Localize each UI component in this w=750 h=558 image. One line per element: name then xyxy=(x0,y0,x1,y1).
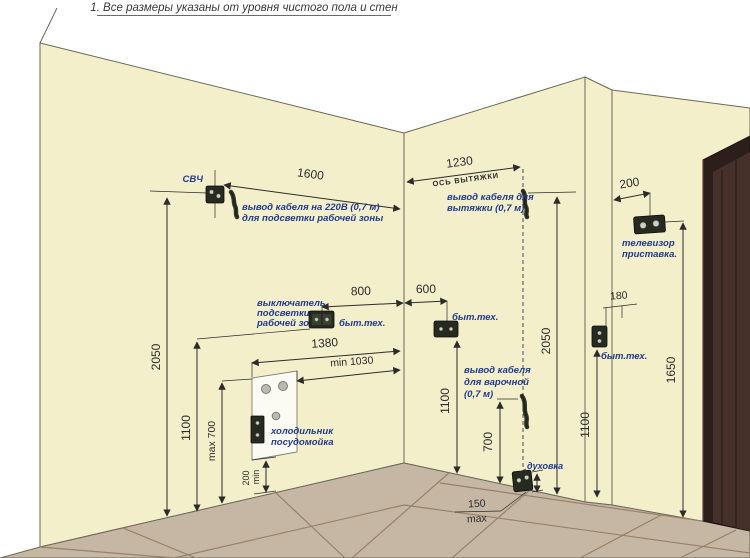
dim-150-label: 150 xyxy=(468,498,486,511)
byt-teh-middle-label: быт.тех. xyxy=(452,312,498,323)
socket-icon-panel xyxy=(251,416,264,443)
socket-icon-byt-teh-right xyxy=(592,326,607,347)
dim-700-label: 700 xyxy=(481,432,495,452)
tv-note-line2: приставка. xyxy=(622,249,677,260)
byt-teh-left-label: быт.тех. xyxy=(339,318,385,329)
fridge-note-line2: посудомойка xyxy=(271,437,334,448)
drawing-note-title: 1. Все размеры указаны от уровня чистого… xyxy=(90,2,398,14)
socket-icon-oven xyxy=(512,470,533,492)
corner-post xyxy=(585,77,612,505)
socket-icon-tv xyxy=(633,215,665,234)
dim-1100-right-label: 1100 xyxy=(578,412,592,438)
dim-150-suffix-label: max xyxy=(467,512,488,525)
dim-200-suffix-label: min xyxy=(251,470,261,485)
dim-180-label: 180 xyxy=(610,289,628,302)
svch-label: СВЧ xyxy=(183,174,204,185)
dim-2050-left-label: 2050 xyxy=(149,343,163,370)
byt-teh-right-label: быт.тех. xyxy=(601,351,647,362)
panel-knob xyxy=(262,385,271,394)
dim-1380-label: 1380 xyxy=(311,335,339,351)
dim-max-700-label: max 700 xyxy=(206,421,218,461)
kitchen-wiring-diagram: 1. Все размеры указаны от уровня чистого… xyxy=(0,0,750,558)
dim-200-label: 200 xyxy=(241,470,251,485)
dim-1100-middle-label: 1100 xyxy=(438,388,452,414)
dim-600-label: 600 xyxy=(416,282,437,296)
cable-220v-note-line1: вывод кабеля на 220В (0,7 м) xyxy=(242,202,380,213)
hood-note-line1: вывод кабеля для xyxy=(447,192,534,203)
hob-note-line3: (0,7 м) xyxy=(464,389,493,400)
tv-note-line1: телевизор xyxy=(622,238,675,249)
panel-knob xyxy=(272,412,280,420)
door-panel xyxy=(713,152,750,531)
fridge-note-line1: холодильник xyxy=(270,426,334,437)
hob-note-line1: вывод кабеля xyxy=(464,365,531,376)
socket-icon-byt-teh-middle xyxy=(434,321,458,337)
panel-knob xyxy=(279,382,288,391)
oven-label: духовка xyxy=(527,461,563,471)
cable-220v-note-line2: для подсветки рабочей зоны xyxy=(242,213,383,224)
diagram-svg: 1. Все размеры указаны от уровня чистого… xyxy=(0,0,750,558)
hob-note-line2: для варочной xyxy=(464,377,529,388)
hood-note-line2: вытяжки (0,7 м) xyxy=(447,203,524,214)
socket-icon-switch xyxy=(309,311,334,328)
dim-1100-left-label: 1100 xyxy=(179,415,193,441)
left-wall-corner-edge xyxy=(40,8,57,43)
dim-800-label: 800 xyxy=(351,284,372,299)
socket-icon-svch xyxy=(206,186,224,203)
dim-1650-label: 1650 xyxy=(664,356,678,383)
dim-2050-middle-label: 2050 xyxy=(539,327,553,354)
